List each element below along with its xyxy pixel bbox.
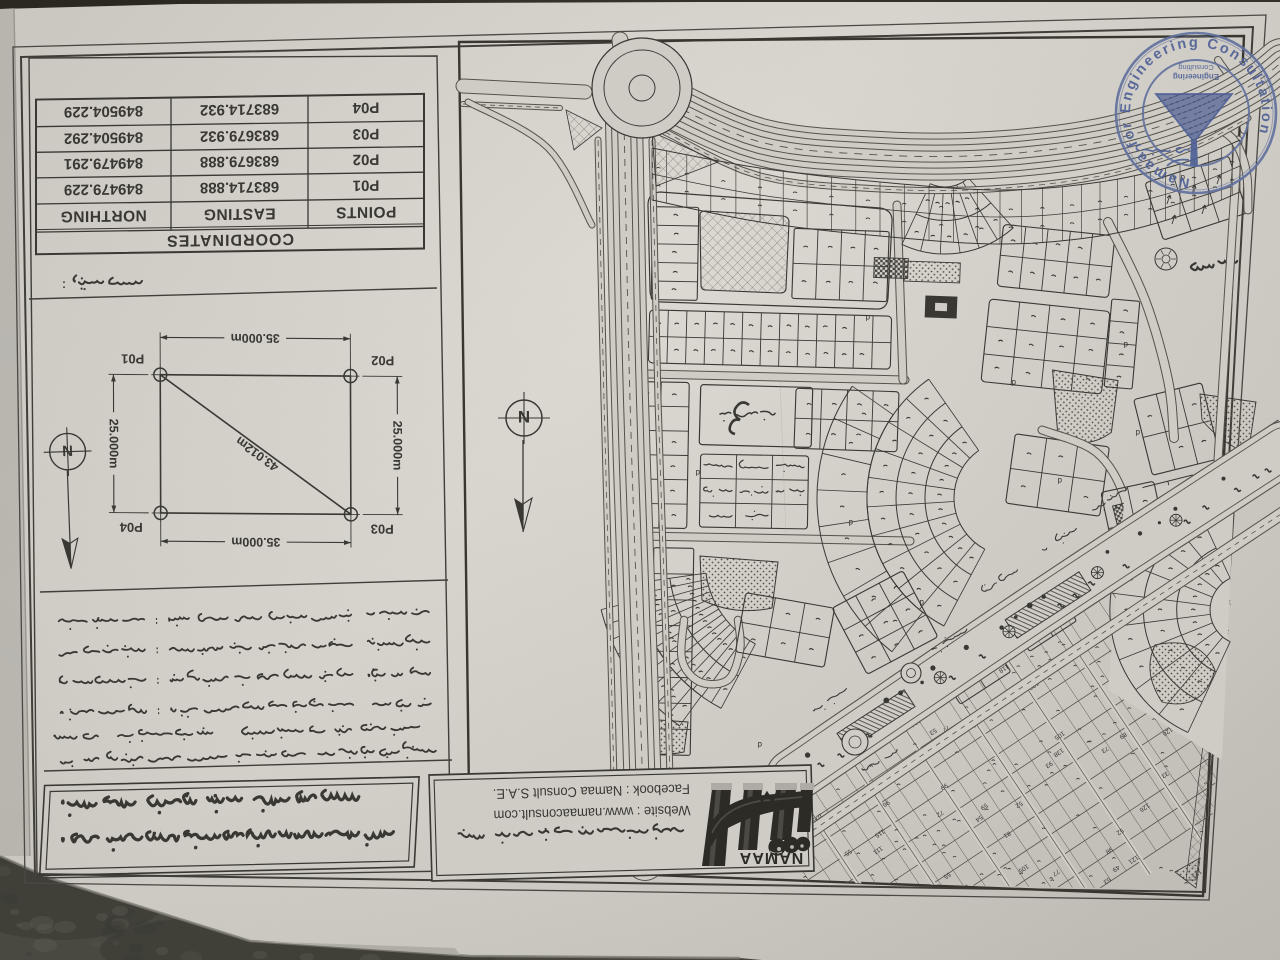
svg-text:P04: P04 [119, 520, 143, 535]
svg-text:d: d [1058, 476, 1062, 485]
svg-text:683679.932: 683679.932 [200, 126, 279, 144]
svg-text:Consulting: Consulting [1178, 63, 1213, 72]
svg-text:683679.888: 683679.888 [200, 152, 279, 170]
svg-text:d: d [758, 740, 762, 749]
svg-text:P02: P02 [353, 151, 380, 168]
svg-text:NORTHING: NORTHING [60, 206, 147, 224]
svg-text:d: d [1012, 378, 1016, 387]
svg-text:d: d [696, 468, 700, 477]
svg-text:683714.888: 683714.888 [200, 178, 279, 196]
svg-text:849504.229: 849504.229 [64, 102, 143, 120]
svg-text:d: d [866, 313, 870, 322]
svg-text:d: d [849, 518, 853, 527]
svg-text:P03: P03 [353, 125, 380, 142]
svg-text:d: d [920, 598, 924, 607]
svg-text:35.000m: 35.000m [231, 331, 280, 345]
svg-text:P01: P01 [121, 351, 144, 366]
svg-text:849479.229: 849479.229 [64, 180, 143, 198]
svg-text:d: d [1136, 428, 1140, 437]
svg-text:683714.932: 683714.932 [200, 100, 279, 118]
svg-text:Engineering: Engineering [1173, 72, 1219, 81]
svg-text:P02: P02 [371, 353, 394, 368]
svg-text:849504.292: 849504.292 [64, 128, 143, 146]
svg-text:d: d [1124, 340, 1128, 349]
svg-text:NAMAA: NAMAA [739, 849, 804, 866]
svg-text:COORDINATES: COORDINATES [166, 230, 294, 250]
svg-text:POINTS: POINTS [336, 203, 397, 221]
svg-text:P01: P01 [353, 176, 380, 193]
svg-text:25.000m: 25.000m [107, 419, 121, 469]
svg-text:P04: P04 [352, 99, 379, 116]
svg-text:P03: P03 [371, 522, 394, 537]
svg-text:N: N [62, 441, 73, 458]
svg-text:25.000m: 25.000m [390, 421, 404, 471]
svg-text:849479.291: 849479.291 [64, 154, 143, 172]
svg-text:EASTING: EASTING [203, 205, 275, 223]
svg-text:N: N [518, 407, 530, 426]
svg-text:35.000m: 35.000m [231, 535, 280, 549]
